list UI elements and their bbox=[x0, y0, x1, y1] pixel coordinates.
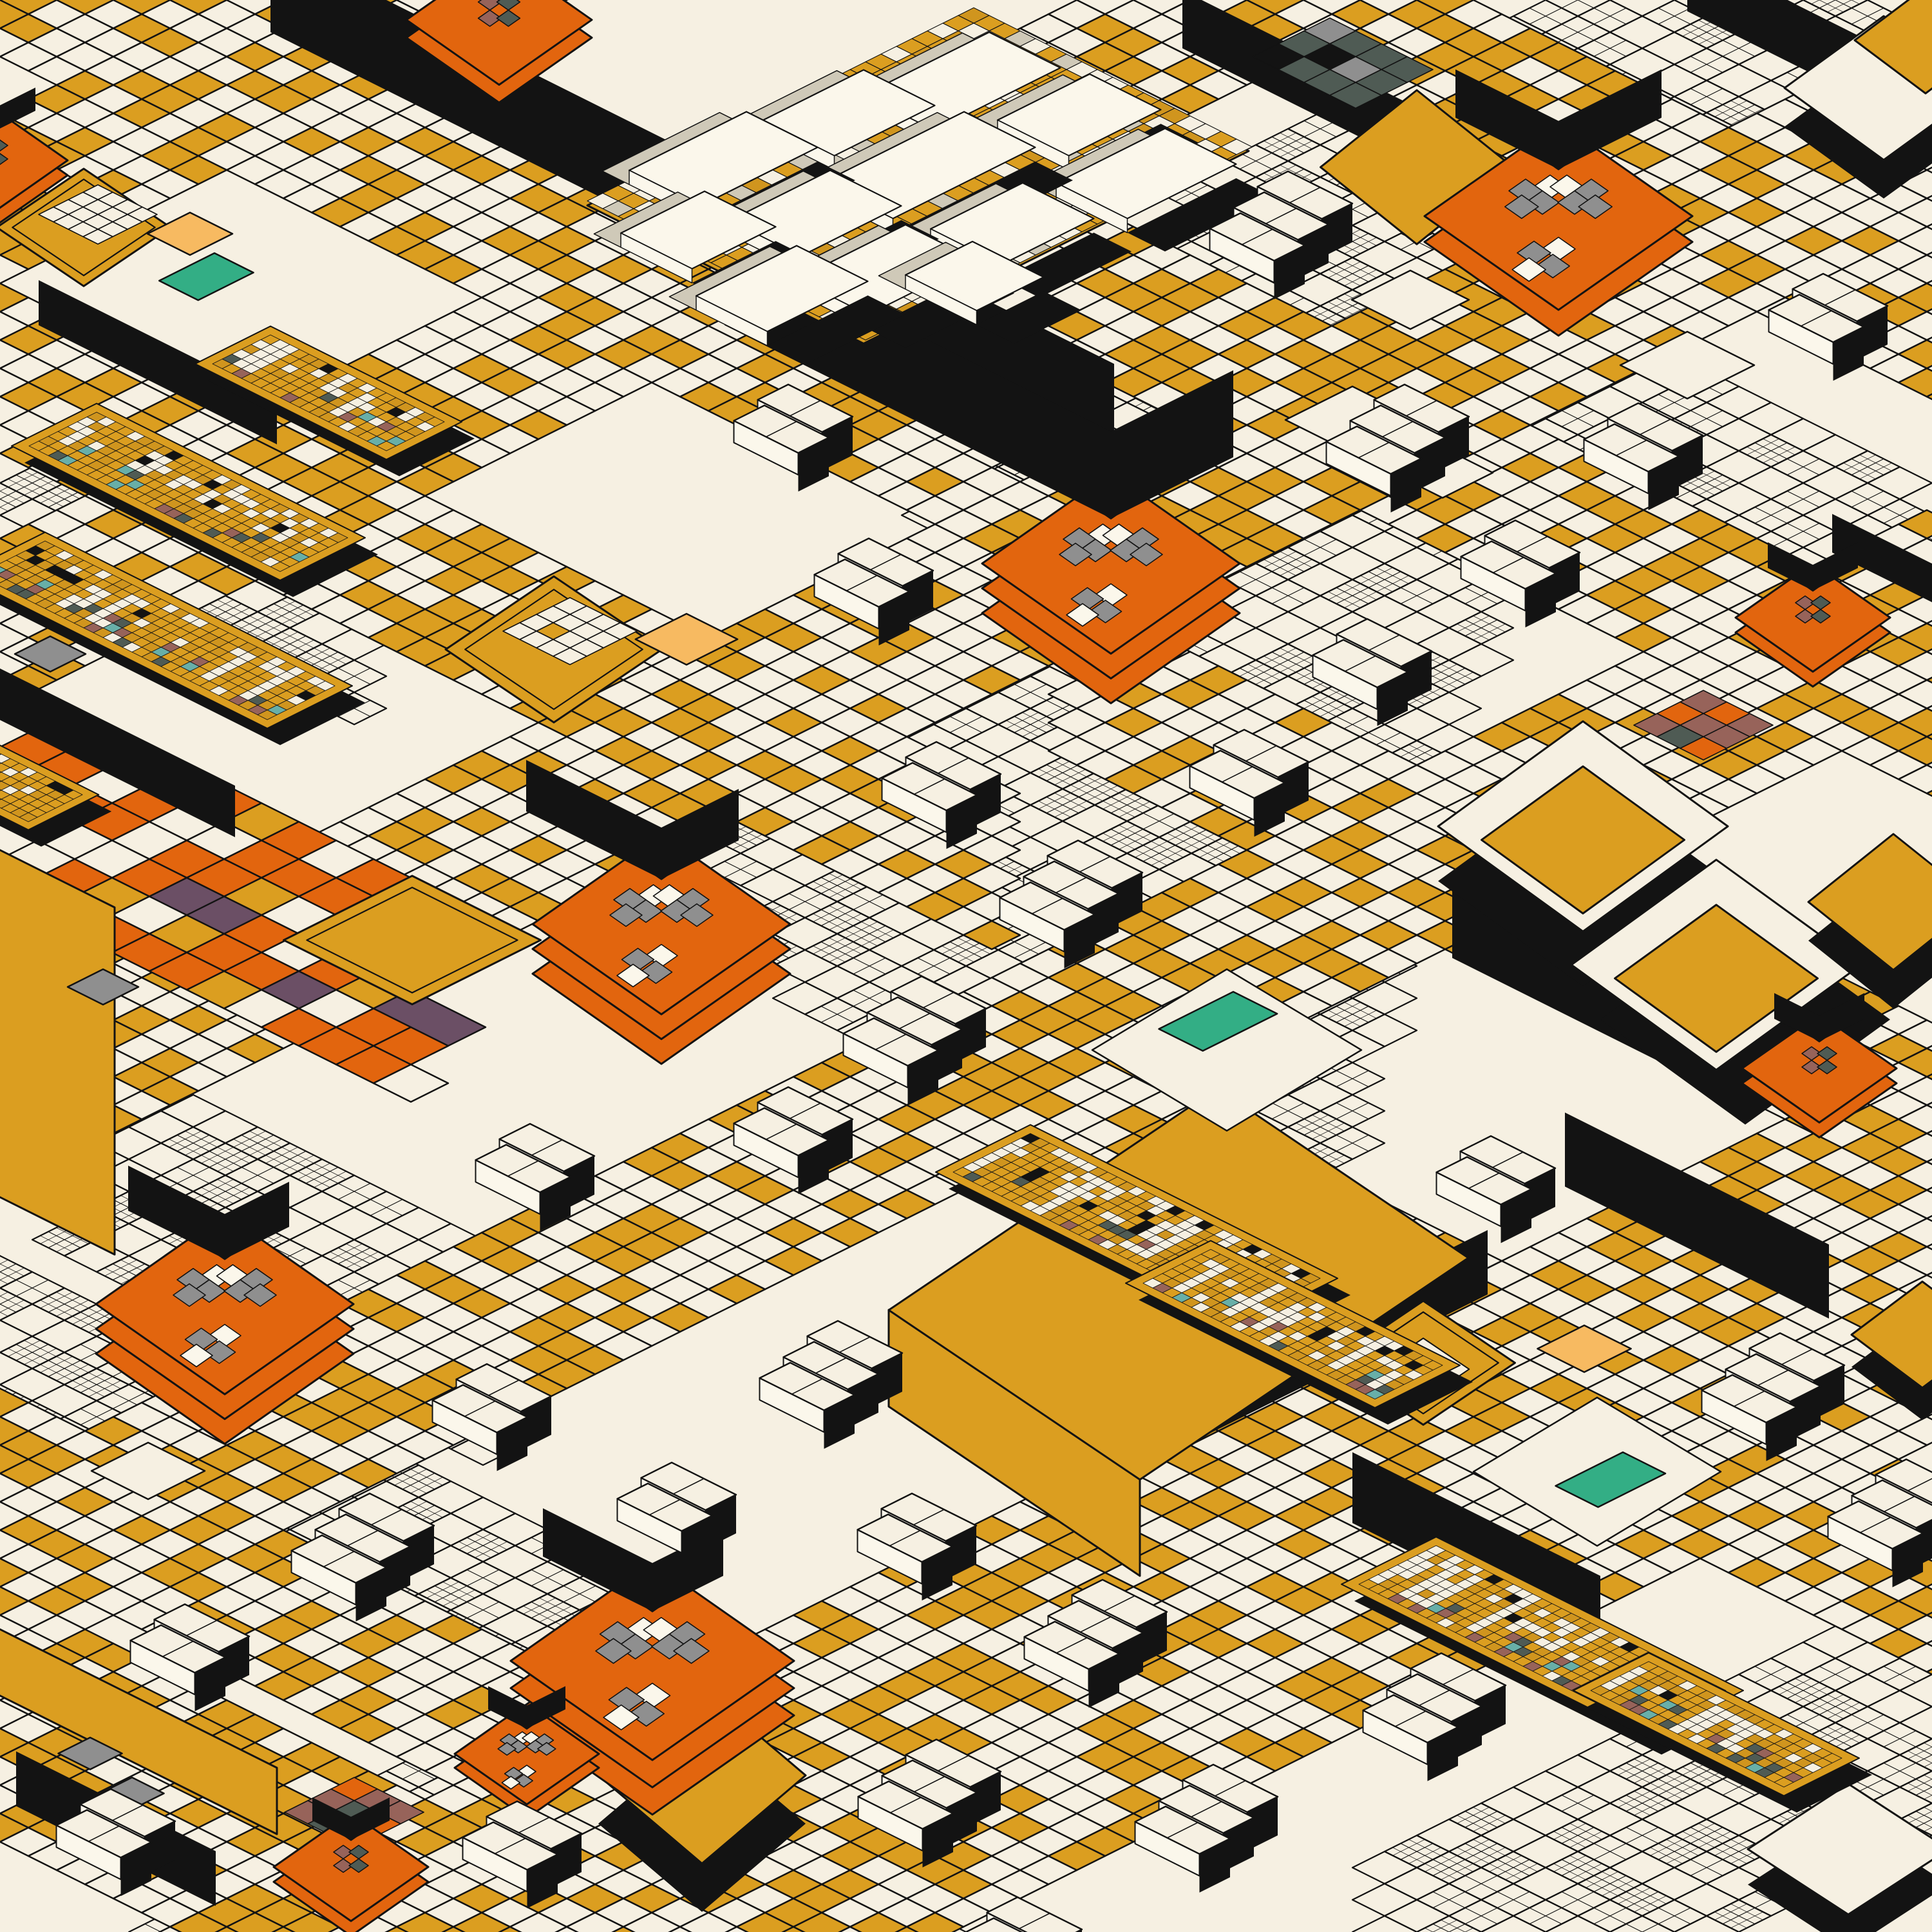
generative-isometric-artwork bbox=[0, 0, 1932, 1932]
artwork-stage bbox=[0, 0, 1932, 1932]
